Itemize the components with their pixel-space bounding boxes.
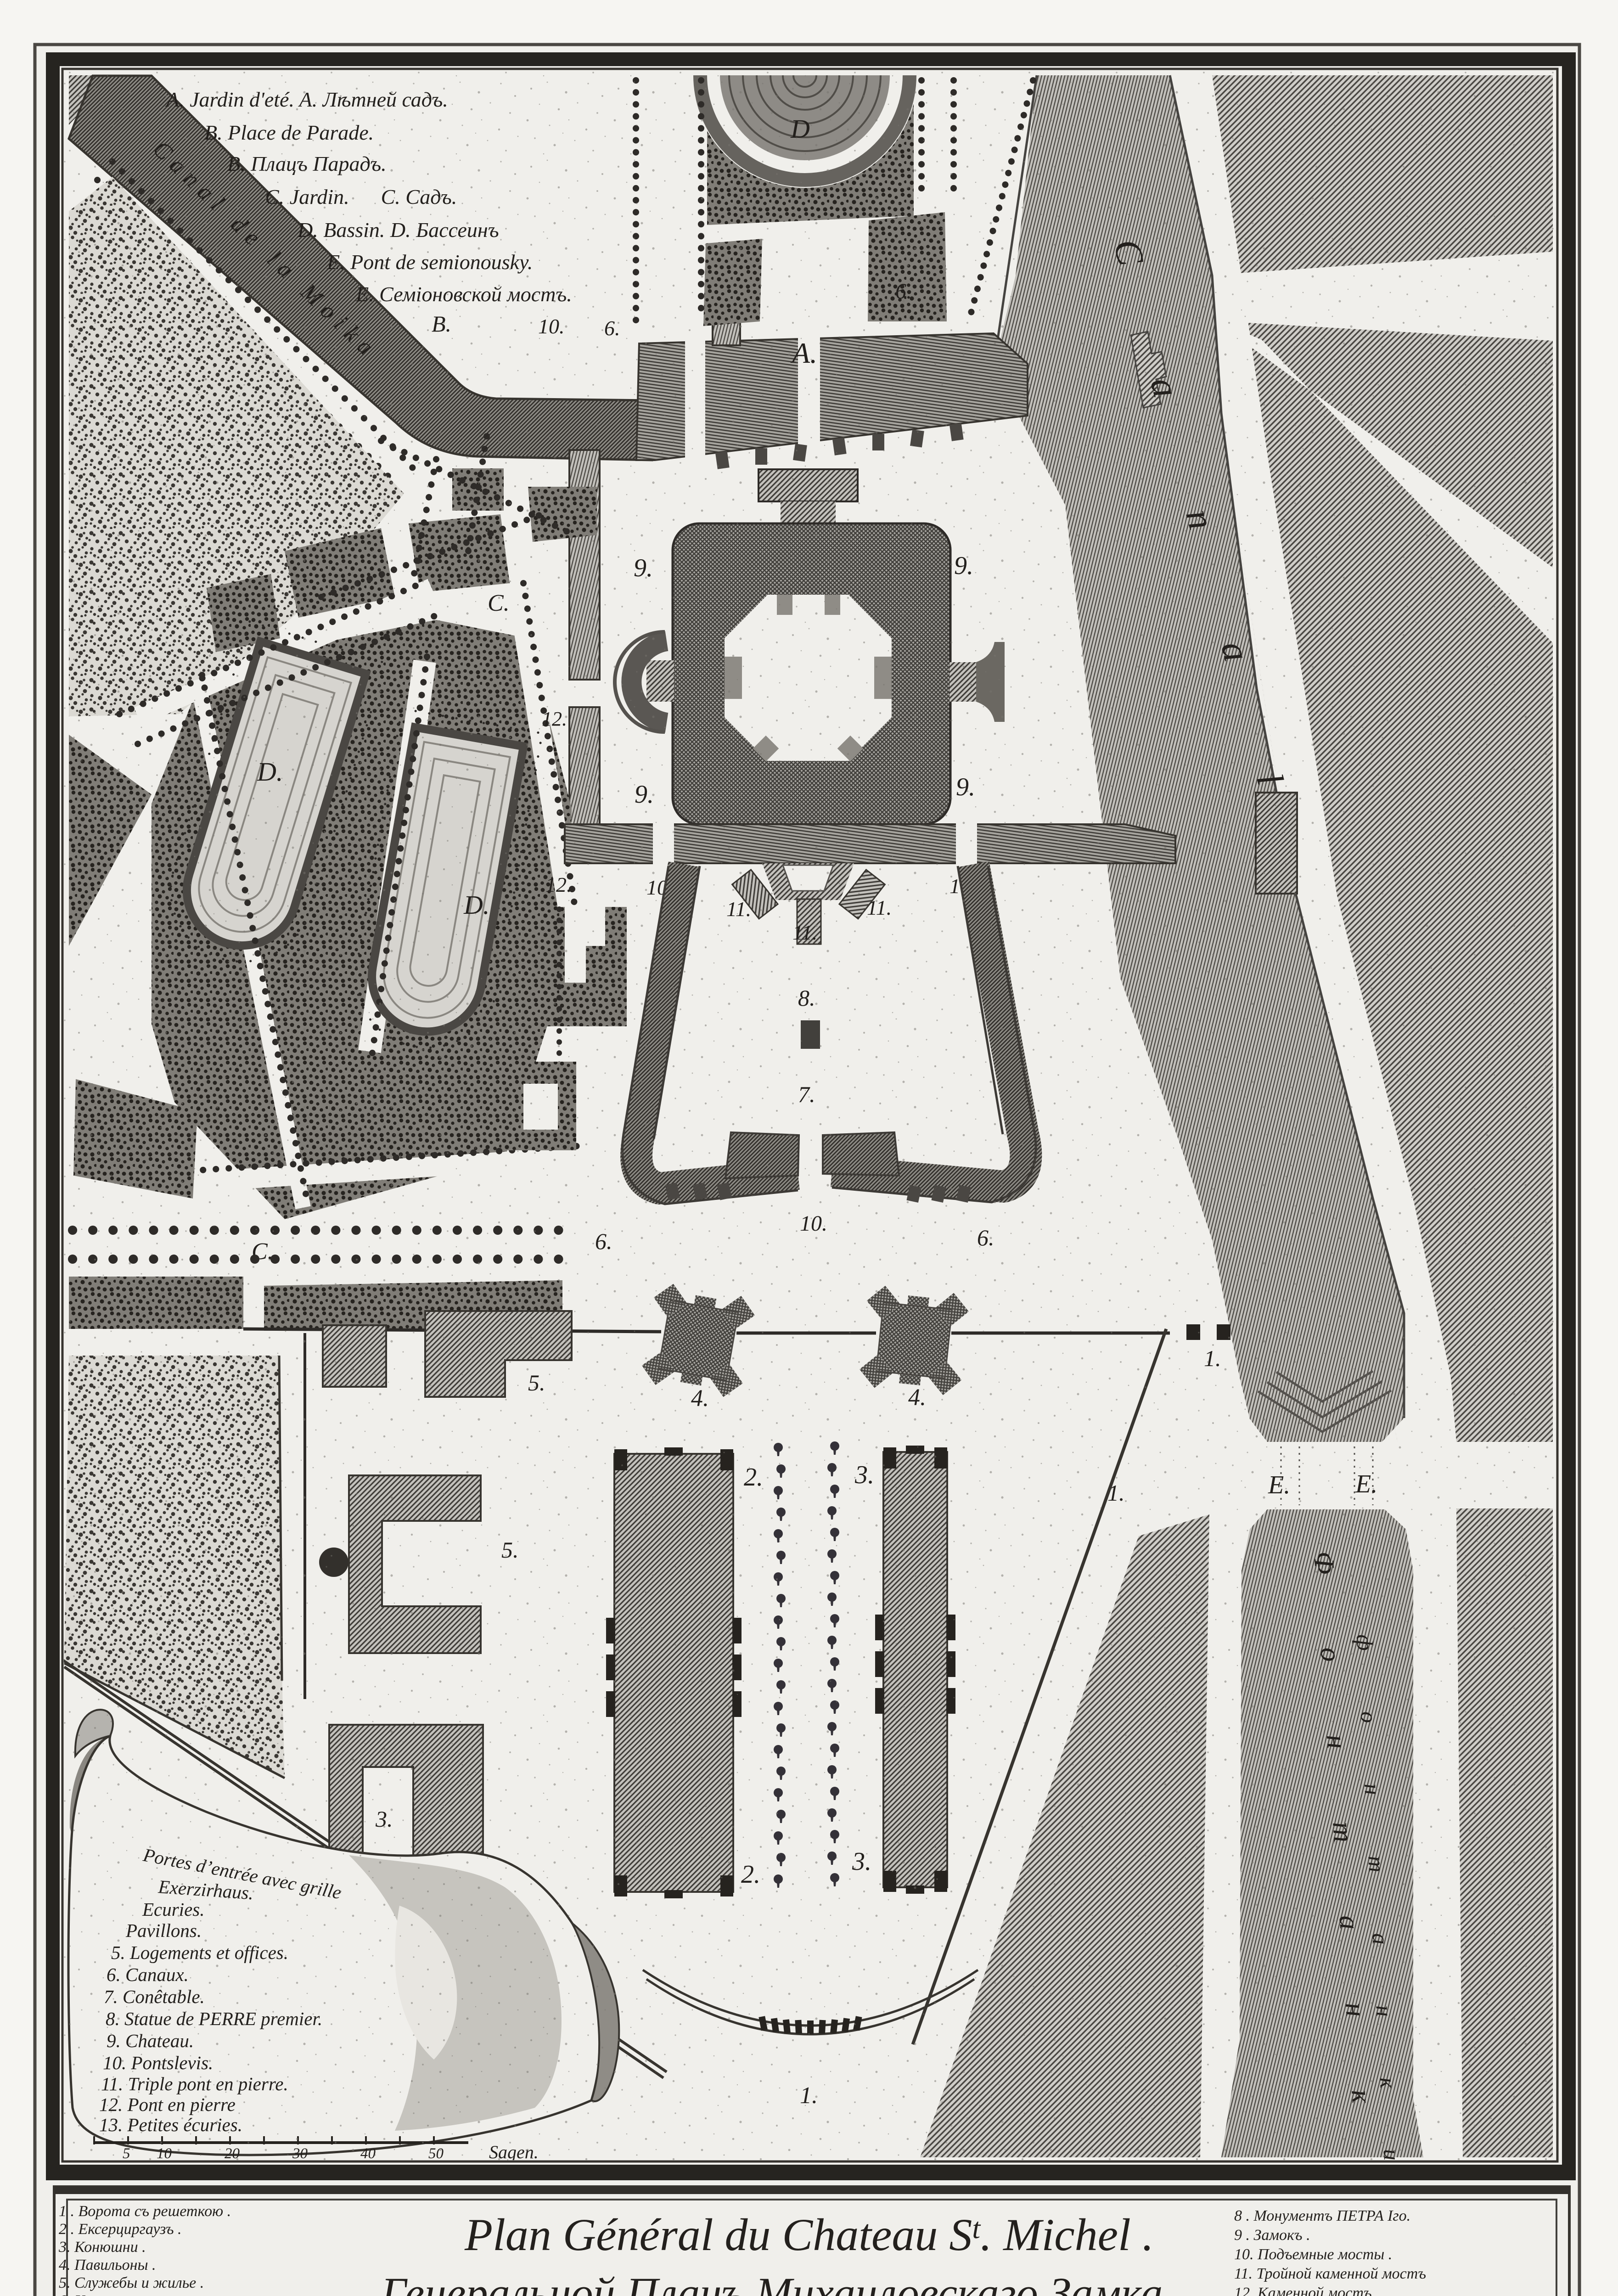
svg-text:2 . Ексерциргаузъ .: 2 . Ексерциргаузъ . — [59, 2221, 182, 2238]
svg-text:3. Конюшни .: 3. Конюшни . — [58, 2239, 146, 2256]
svg-text:11. Тройной каменной мостъ: 11. Тройной каменной мостъ — [1234, 2265, 1426, 2282]
svg-text:5. Служебы и жилье .: 5. Служебы и жилье . — [59, 2274, 204, 2291]
svg-text:8 . Монументъ ПЕТРА Iго.: 8 . Монументъ ПЕТРА Iго. — [1234, 2207, 1410, 2224]
svg-text:Генеральной Планъ Михаиловскаг: Генеральной Планъ Михаиловскаго Замка . — [381, 2268, 1185, 2296]
svg-text:10. Подъемные мосты .: 10. Подъемные мосты . — [1234, 2246, 1392, 2263]
svg-text:6. Каналы .: 6. Каналы . — [59, 2292, 133, 2296]
svg-text:12. Каменной мостъ .: 12. Каменной мостъ . — [1234, 2285, 1380, 2296]
svg-text:9 . Замокъ .: 9 . Замокъ . — [1234, 2227, 1310, 2244]
svg-text:4. Павильоны .: 4. Павильоны . — [59, 2257, 156, 2273]
svg-text:1 . Ворота съ решеткою .: 1 . Ворота съ решеткою . — [59, 2203, 231, 2220]
svg-text:Plan Général du Chateau St. Mi: Plan Général du Chateau St. Michel . — [464, 2209, 1154, 2260]
